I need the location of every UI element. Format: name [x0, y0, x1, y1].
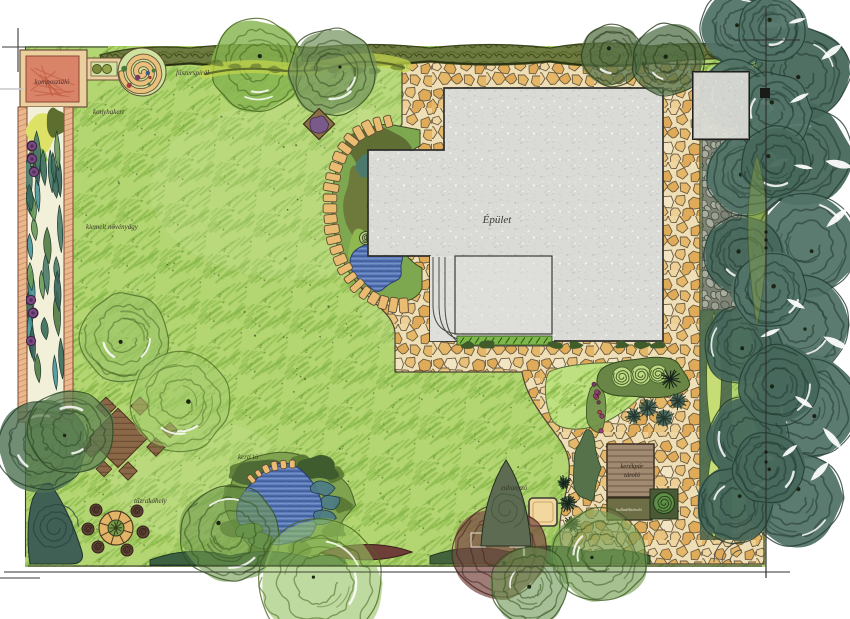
svg-text:hulladéktároló: hulladéktároló — [616, 507, 642, 512]
svg-text:kerékpár: kerékpár — [620, 463, 644, 470]
svg-text:tűzrakóhely: tűzrakóhely — [134, 497, 168, 505]
svg-text:kerti tó: kerti tó — [238, 453, 259, 461]
svg-text:fűszerspirál: fűszerspirál — [176, 69, 209, 77]
svg-text:Épület: Épület — [482, 214, 513, 226]
svg-text:komposztáló: komposztáló — [35, 78, 71, 86]
svg-text:konyhakert: konyhakert — [93, 108, 125, 116]
svg-text:tároló: tároló — [624, 472, 640, 479]
svg-text:zuhanyzó: zuhanyzó — [500, 484, 528, 492]
svg-text:kiemelt növényágy: kiemelt növényágy — [86, 223, 139, 231]
